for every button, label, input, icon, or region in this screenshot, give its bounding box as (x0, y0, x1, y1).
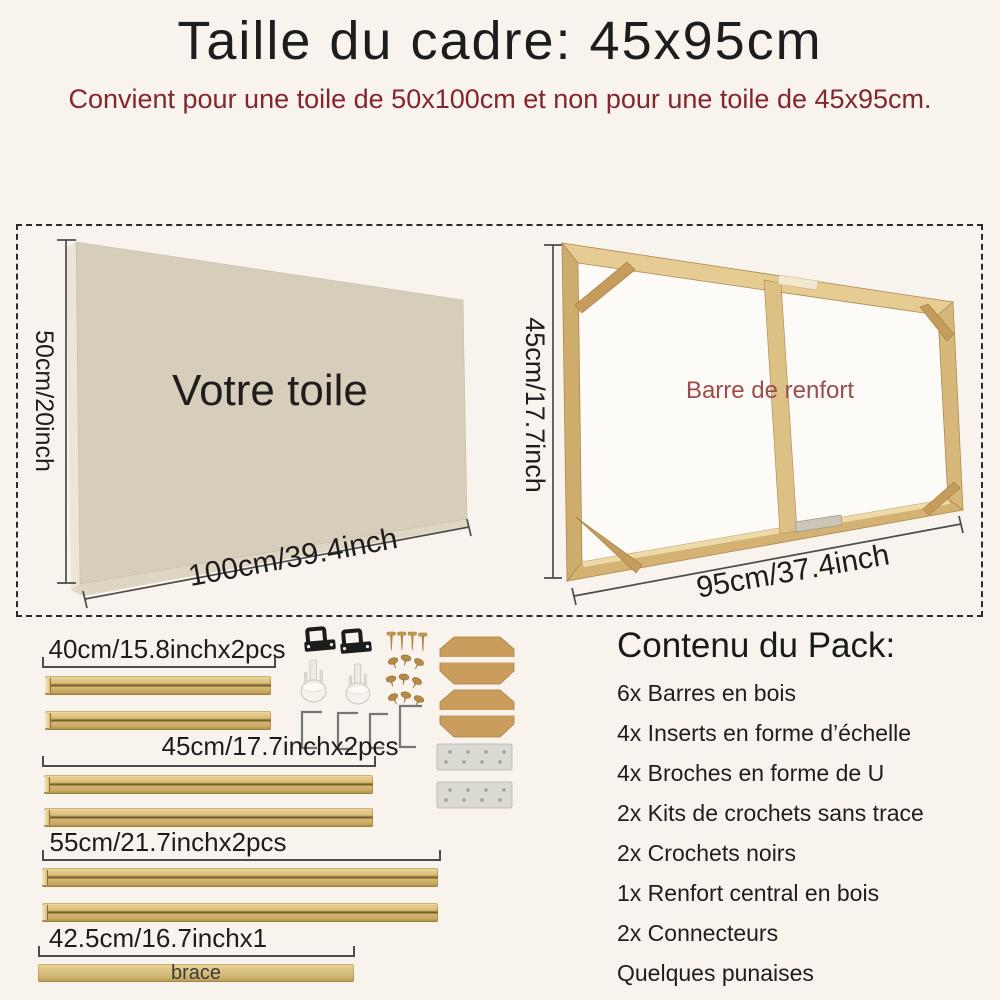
frame-height-label: 45cm/17.7inch (521, 235, 549, 575)
pack-item: 2x Connecteurs (617, 913, 997, 953)
wood-bar-45cm (44, 808, 373, 827)
pack-item: 6x Barres en bois (617, 673, 997, 713)
wood-bar-55cm (42, 903, 438, 922)
bar-45cm-measure (42, 756, 376, 767)
canvas-label: Votre toile (120, 366, 420, 416)
pack-item: 2x Crochets noirs (617, 833, 997, 873)
pack-contents-list: 6x Barres en bois 4x Inserts en forme d’… (617, 673, 997, 993)
brace-bar-text: brace (171, 962, 221, 984)
bar-55cm-measure (42, 850, 441, 861)
wood-bar-45cm (44, 775, 373, 794)
page-subtitle: Convient pour une toile de 50x100cm et n… (0, 84, 1000, 115)
brace-bar-measure (38, 946, 355, 957)
product-infographic: { "header": { "title": "Taille du cadre:… (0, 0, 1000, 1000)
wood-bar-40cm (45, 711, 271, 730)
pack-item: 4x Inserts en forme d’échelle (617, 713, 997, 753)
pack-contents-heading: Contenu du Pack: (617, 626, 895, 666)
page-title: Taille du cadre: 45x95cm (0, 8, 1000, 74)
black-hook-icon (339, 629, 372, 654)
black-hook-icon (303, 627, 336, 652)
reinforcement-bar-label: Barre de renfort (640, 377, 900, 405)
tack-icons (385, 654, 424, 708)
corner-wedge-icons (437, 637, 517, 737)
plastic-anchor-icon (301, 660, 326, 702)
screw-icon (387, 632, 427, 652)
wood-bar-55cm (42, 868, 438, 887)
pack-item: 1x Renfort central en bois (617, 873, 997, 913)
wood-bar-40cm (45, 676, 271, 695)
bar-40cm-measure (42, 657, 276, 668)
wood-brace-bar: brace (38, 964, 354, 982)
pack-item: Quelques punaises (617, 953, 997, 993)
canvas-height-label: 50cm/20inch (29, 251, 59, 551)
pack-item: 2x Kits de crochets sans trace (617, 793, 997, 833)
pack-item: 4x Broches en forme de U (617, 753, 997, 793)
connector-plate-icons (437, 744, 512, 808)
plastic-anchor-icon (346, 664, 370, 704)
